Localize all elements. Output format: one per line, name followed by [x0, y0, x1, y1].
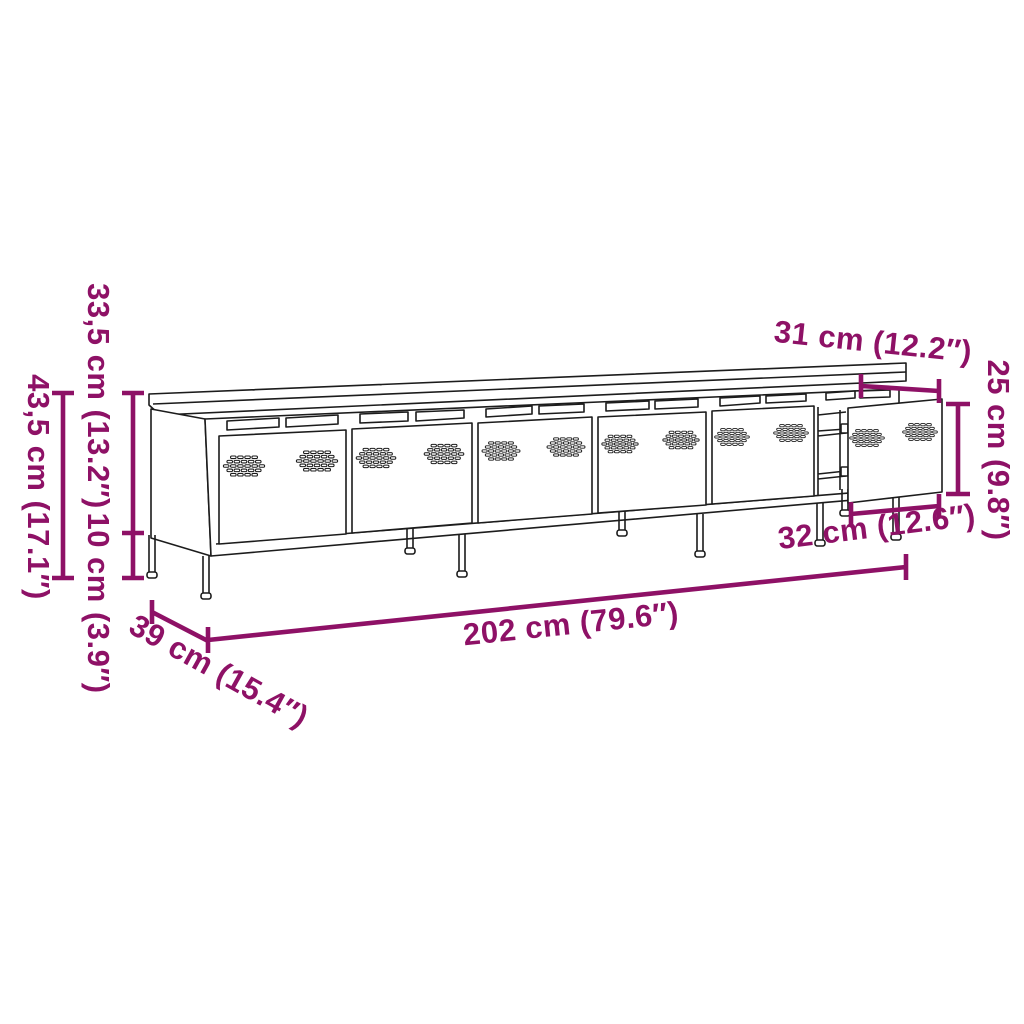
dim-label-total-depth: 39 cm (15.4″)	[124, 607, 315, 734]
dim-label-door-width: 32 cm (12.6″)	[776, 497, 978, 556]
dim-label-door-height: 25 cm (9.8″)	[981, 359, 1016, 540]
dim-line-door-height	[946, 404, 970, 494]
door-hinge-top	[841, 424, 848, 433]
door-panel-6	[848, 399, 942, 503]
detached-door	[841, 399, 942, 503]
diagram-svg: 33,5 cm (13.2″) 10 cm (3.9″) 43,5 cm (17…	[0, 0, 1024, 1024]
dim-label-top-depth: 31 cm (12.2″)	[772, 314, 973, 370]
tv-cabinet-drawing	[147, 363, 942, 599]
cabinet-side-panel	[151, 409, 211, 556]
dim-label-total-height: 43,5 cm (17.1″)	[21, 374, 56, 600]
dim-label-body-height: 33,5 cm (13.2″)	[81, 283, 116, 509]
door-panel-1	[219, 430, 346, 544]
door-panel-5	[712, 406, 814, 504]
door-panel-4	[598, 412, 706, 513]
dim-label-leg-height: 10 cm (3.9″)	[81, 512, 116, 693]
door-hinge-bottom	[841, 467, 848, 476]
door-panel-2	[352, 423, 472, 533]
dimension-diagram: 33,5 cm (13.2″) 10 cm (3.9″) 43,5 cm (17…	[0, 0, 1024, 1024]
dim-line-body-and-leg-height	[122, 393, 144, 578]
door-panel-3	[478, 417, 592, 523]
